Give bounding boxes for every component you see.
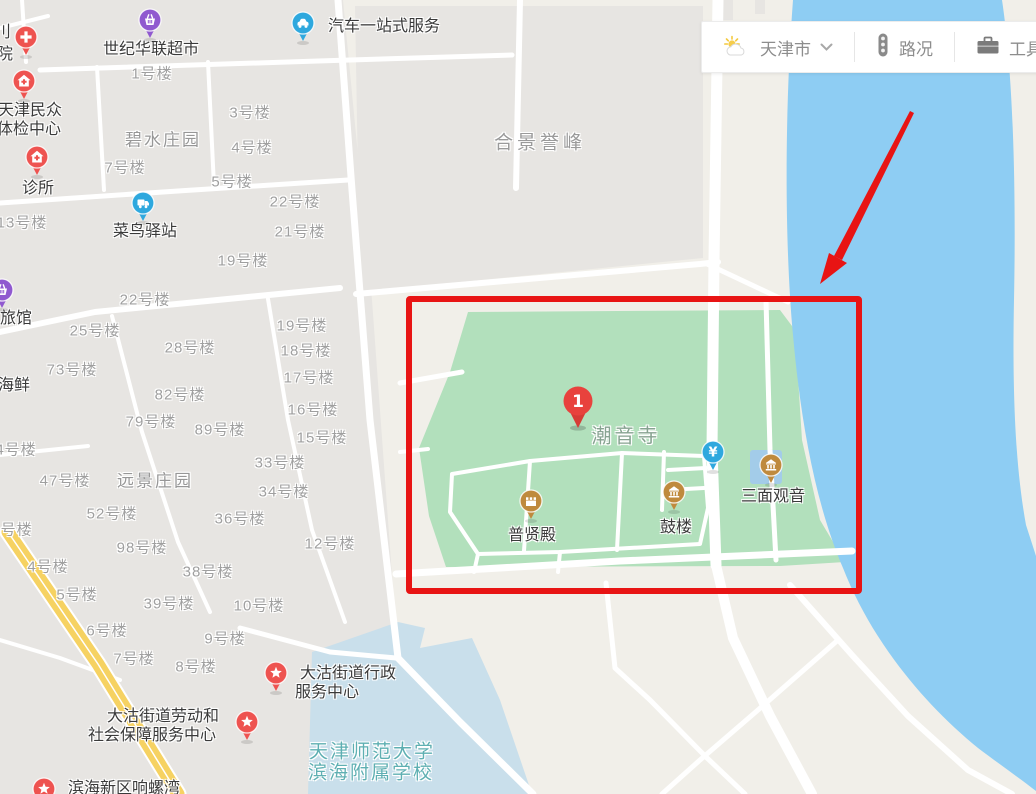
- building-label: 36号楼: [215, 508, 266, 529]
- city-selector[interactable]: 天津市: [702, 22, 854, 72]
- building-label: 7号楼: [113, 648, 154, 669]
- building-label: 52号楼: [87, 503, 138, 524]
- area-label: 碧水庄园: [125, 126, 201, 151]
- building-label: 73号楼: [47, 359, 98, 380]
- building-label: 28号楼: [165, 337, 216, 358]
- building-label: 5号楼: [56, 584, 97, 605]
- admin-center-pin[interactable]: [263, 660, 289, 701]
- building-label: 7号楼: [104, 157, 145, 178]
- tools-label: 工具箱: [1009, 35, 1036, 60]
- building-label: 9号楼: [204, 628, 245, 649]
- building-label: 33号楼: [255, 452, 306, 473]
- car-service-pin[interactable]: [290, 10, 316, 51]
- building-label: 98号楼: [117, 537, 168, 558]
- traffic-button[interactable]: 路况: [855, 22, 954, 72]
- building-label: 79号楼: [126, 411, 177, 432]
- school-label: 滨海附属学校: [308, 758, 434, 785]
- building-label: 34号楼: [259, 481, 310, 502]
- hotel-pin[interactable]: [0, 277, 15, 318]
- poi-label: 汽车一站式服务: [328, 12, 440, 36]
- toolbox-icon: [976, 35, 1000, 60]
- building-label: 4号楼: [231, 137, 272, 158]
- building-label: 10号楼: [234, 595, 285, 616]
- building-label: 1号楼: [131, 63, 172, 84]
- building-label: 19号楼: [218, 250, 269, 271]
- labor-center-pin[interactable]: [234, 709, 260, 750]
- hospital-pin[interactable]: [13, 24, 39, 65]
- traffic-light-icon: [876, 32, 890, 63]
- poi-label: 体检中心: [0, 115, 61, 139]
- building-label: 4号楼: [27, 556, 68, 577]
- map-canvas[interactable]: 世纪华联超市汽车一站式服务天津民众体检中心诊所菜鸟驿站旅馆海鲜刂院碧水庄园合景誉…: [0, 0, 1036, 794]
- building-label: 18号楼: [281, 340, 332, 361]
- clinic-pin[interactable]: [24, 144, 50, 185]
- highlight-rectangle: [406, 296, 862, 594]
- building-label: 6号楼: [86, 620, 127, 641]
- map-toolbar: 天津市 路况: [701, 21, 1036, 73]
- xiangluowan-pin[interactable]: [31, 776, 57, 794]
- weather-icon: [723, 35, 751, 59]
- supermarket-pin[interactable]: [137, 7, 163, 48]
- building-label: 4号楼: [0, 439, 37, 460]
- toolbox-button[interactable]: 工具箱: [955, 22, 1036, 72]
- poi-label: 刂: [0, 18, 11, 42]
- area-label: 合景誉峰: [494, 128, 586, 155]
- area-label: 远景庄园: [117, 467, 193, 492]
- poi-label: 服务中心: [295, 678, 359, 702]
- building-label: 89号楼: [195, 419, 246, 440]
- building-label: 3号楼: [229, 102, 270, 123]
- checkup-center-pin[interactable]: [11, 68, 37, 109]
- building-label: 8号楼: [175, 656, 216, 677]
- building-label: 12号楼: [305, 533, 356, 554]
- poi-label: 社会保障服务中心: [88, 721, 216, 745]
- building-label: 13号楼: [0, 212, 47, 233]
- poi-label: 海鲜: [0, 371, 30, 395]
- building-label: 19号楼: [277, 315, 328, 336]
- building-label: 22号楼: [270, 191, 321, 212]
- building-label: 25号楼: [70, 320, 121, 341]
- building-label: 47号楼: [40, 470, 91, 491]
- building-label: 22号楼: [120, 289, 171, 310]
- chevron-down-icon: [820, 43, 833, 52]
- building-label: 16号楼: [288, 399, 339, 420]
- building-label: 82号楼: [155, 384, 206, 405]
- building-label: 15号楼: [297, 427, 348, 448]
- building-label: 17号楼: [284, 367, 335, 388]
- city-name: 天津市: [760, 35, 811, 60]
- building-label: 39号楼: [144, 593, 195, 614]
- poi-label: 滨海新区响螺湾: [68, 774, 180, 794]
- building-label: 5号楼: [211, 171, 252, 192]
- building-label: 38号楼: [183, 561, 234, 582]
- traffic-label: 路况: [899, 35, 933, 60]
- building-label: 3号楼: [0, 519, 33, 540]
- cainiao-station-pin[interactable]: [130, 190, 156, 231]
- building-label: 21号楼: [275, 221, 326, 242]
- poi-label: 院: [0, 40, 13, 64]
